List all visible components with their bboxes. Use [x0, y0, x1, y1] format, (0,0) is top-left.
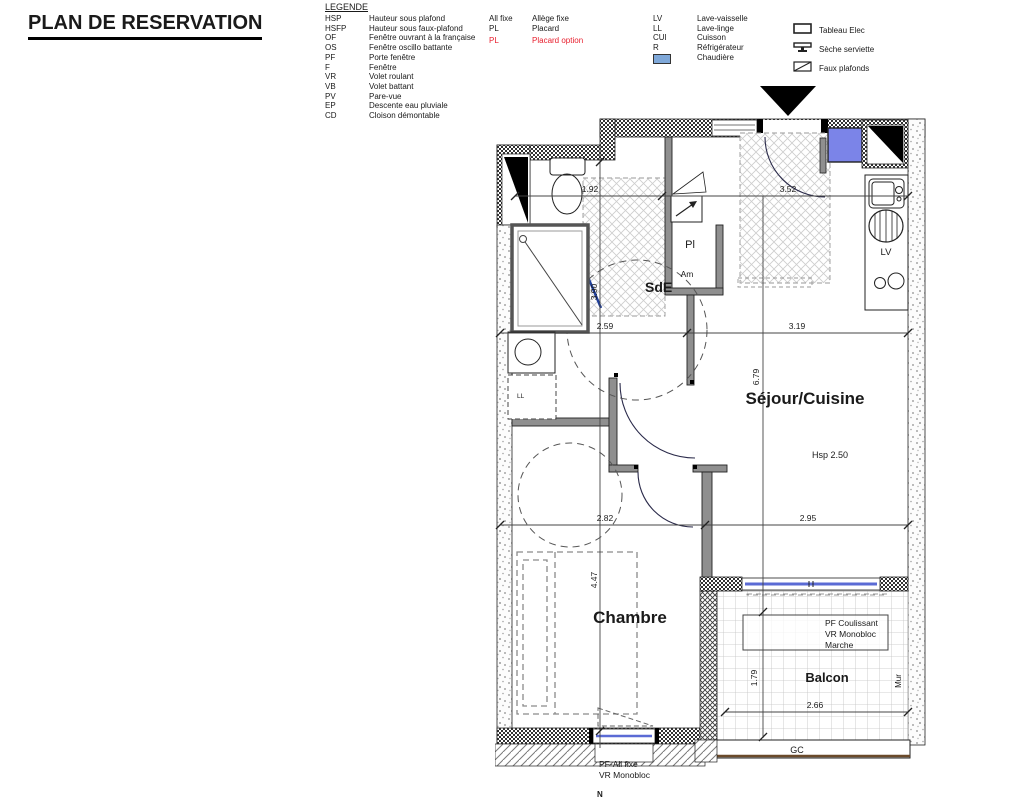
legend-item: VBVolet battant	[325, 82, 475, 92]
radiator	[671, 172, 706, 222]
svg-text:2.82: 2.82	[597, 513, 614, 523]
legend-item: OSFenêtre oscillo battante	[325, 43, 475, 53]
balcony: PF Coulissant VR Monobloc Marche GC Mur	[695, 577, 910, 762]
bed	[517, 552, 637, 714]
cooktop-burner	[888, 273, 904, 289]
label-chambre: Chambre	[593, 608, 667, 627]
legend-item-placard-option: PLPlacard option	[489, 36, 583, 46]
legend-item: CDCloison démontable	[325, 111, 475, 121]
faux-plafonds-icon	[793, 61, 819, 76]
note-pf-coulissant: PF Coulissant	[825, 618, 879, 628]
svg-text:2.66: 2.66	[807, 700, 824, 710]
chaudiere-swatch-icon	[653, 54, 671, 64]
legend-item: VRVolet roulant	[325, 72, 475, 82]
cooktop-burner	[875, 278, 886, 289]
label-gc: GC	[790, 745, 804, 755]
legend-item-faux-plafonds: Faux plafonds	[793, 59, 874, 78]
chambre-window	[589, 728, 659, 744]
wc-toilet	[550, 158, 585, 214]
legend-item: RRéfrigérateur	[653, 43, 748, 53]
legend-item: OFFenêtre ouvrant à la française	[325, 33, 475, 43]
washbasin	[508, 332, 555, 373]
legend-column-2: All fixeAllège fixe PLPlacard PLPlacard …	[489, 14, 583, 46]
svg-text:3.19: 3.19	[789, 321, 806, 331]
legend-item: LLLave-linge	[653, 24, 748, 34]
label-balcon: Balcon	[805, 670, 848, 685]
legend-item-seche-serviette: Sèche serviette	[793, 40, 874, 59]
kitchen-sink	[869, 179, 904, 208]
svg-text:Am: Am	[681, 269, 694, 279]
legend-item-chaudiere: Chaudière	[653, 53, 748, 67]
note-vr-monobloc-2: VR Monobloc	[599, 770, 651, 780]
label-sejour: Séjour/Cuisine	[745, 389, 864, 408]
svg-text:4.47: 4.47	[589, 571, 599, 588]
svg-text:1.79: 1.79	[749, 669, 759, 686]
washing-machine: LL	[508, 375, 556, 419]
svg-text:1.92: 1.92	[582, 184, 599, 194]
legend-item: PFPorte fenêtre	[325, 53, 475, 63]
legend-item: CUICuisson	[653, 33, 748, 43]
svg-text:3.90: 3.90	[589, 283, 599, 300]
tableau-elec-icon	[793, 23, 819, 38]
note-pf-all-fixe: PF-All fixe	[599, 759, 638, 769]
legend-item: FFenêtre	[325, 63, 475, 73]
seche-serviette-icon	[793, 42, 819, 58]
placard: Pl Am	[681, 239, 695, 279]
label-sde: SdE	[645, 279, 672, 295]
legend-item: HSPHauteur sous plafond	[325, 14, 475, 24]
svg-text:6.79: 6.79	[751, 368, 761, 385]
legend-item: EPDescente eau pluviale	[325, 101, 475, 111]
north-label: N	[597, 790, 603, 799]
door-stops	[614, 373, 697, 469]
shower	[512, 225, 588, 332]
window-flap-dashed	[598, 708, 653, 726]
boiler	[828, 128, 862, 162]
svg-text:3.52: 3.52	[780, 184, 797, 194]
floor-plan: LL Pl Am LV	[495, 80, 930, 800]
legend-item: PVPare-vue	[325, 92, 475, 102]
entry-arrow-icon	[760, 86, 816, 116]
chambre-door-arc	[638, 472, 693, 527]
page-title: PLAN DE RESERVATION	[28, 12, 262, 40]
legend-item: PLPlacard	[489, 24, 583, 34]
drainboard	[869, 210, 903, 242]
label-hsp: Hsp 2.50	[812, 450, 848, 460]
svg-text:Pl: Pl	[685, 239, 695, 251]
legend-item: All fixeAllège fixe	[489, 14, 583, 24]
svg-text:2.59: 2.59	[597, 321, 614, 331]
svg-text:LL: LL	[517, 393, 525, 400]
svg-text:2.95: 2.95	[800, 513, 817, 523]
corner-duct	[862, 120, 908, 168]
label-mur: Mur	[894, 674, 903, 688]
legend-column-3: LVLave-vaisselle LLLave-linge CUICuisson…	[653, 14, 748, 67]
sejour-door-arc	[620, 383, 695, 458]
legend-item: HSFPHauteur sous faux-plafond	[325, 24, 475, 34]
legend-column-1: HSPHauteur sous plafond HSFPHauteur sous…	[325, 14, 475, 121]
kitchen-unit: LV	[865, 175, 908, 310]
legend-column-4: Tableau Elec Sèche serviette Faux plafon…	[793, 21, 874, 78]
legend-item: LVLave-vaisselle	[653, 14, 748, 24]
legend-item-tableau-elec: Tableau Elec	[793, 21, 874, 40]
note-vr-monobloc: VR Monobloc	[825, 629, 877, 639]
legend-header: LEGENDE	[325, 2, 368, 12]
note-marche: Marche	[825, 640, 854, 650]
svg-text:LV: LV	[881, 247, 893, 258]
guardrail: GC	[695, 740, 910, 762]
